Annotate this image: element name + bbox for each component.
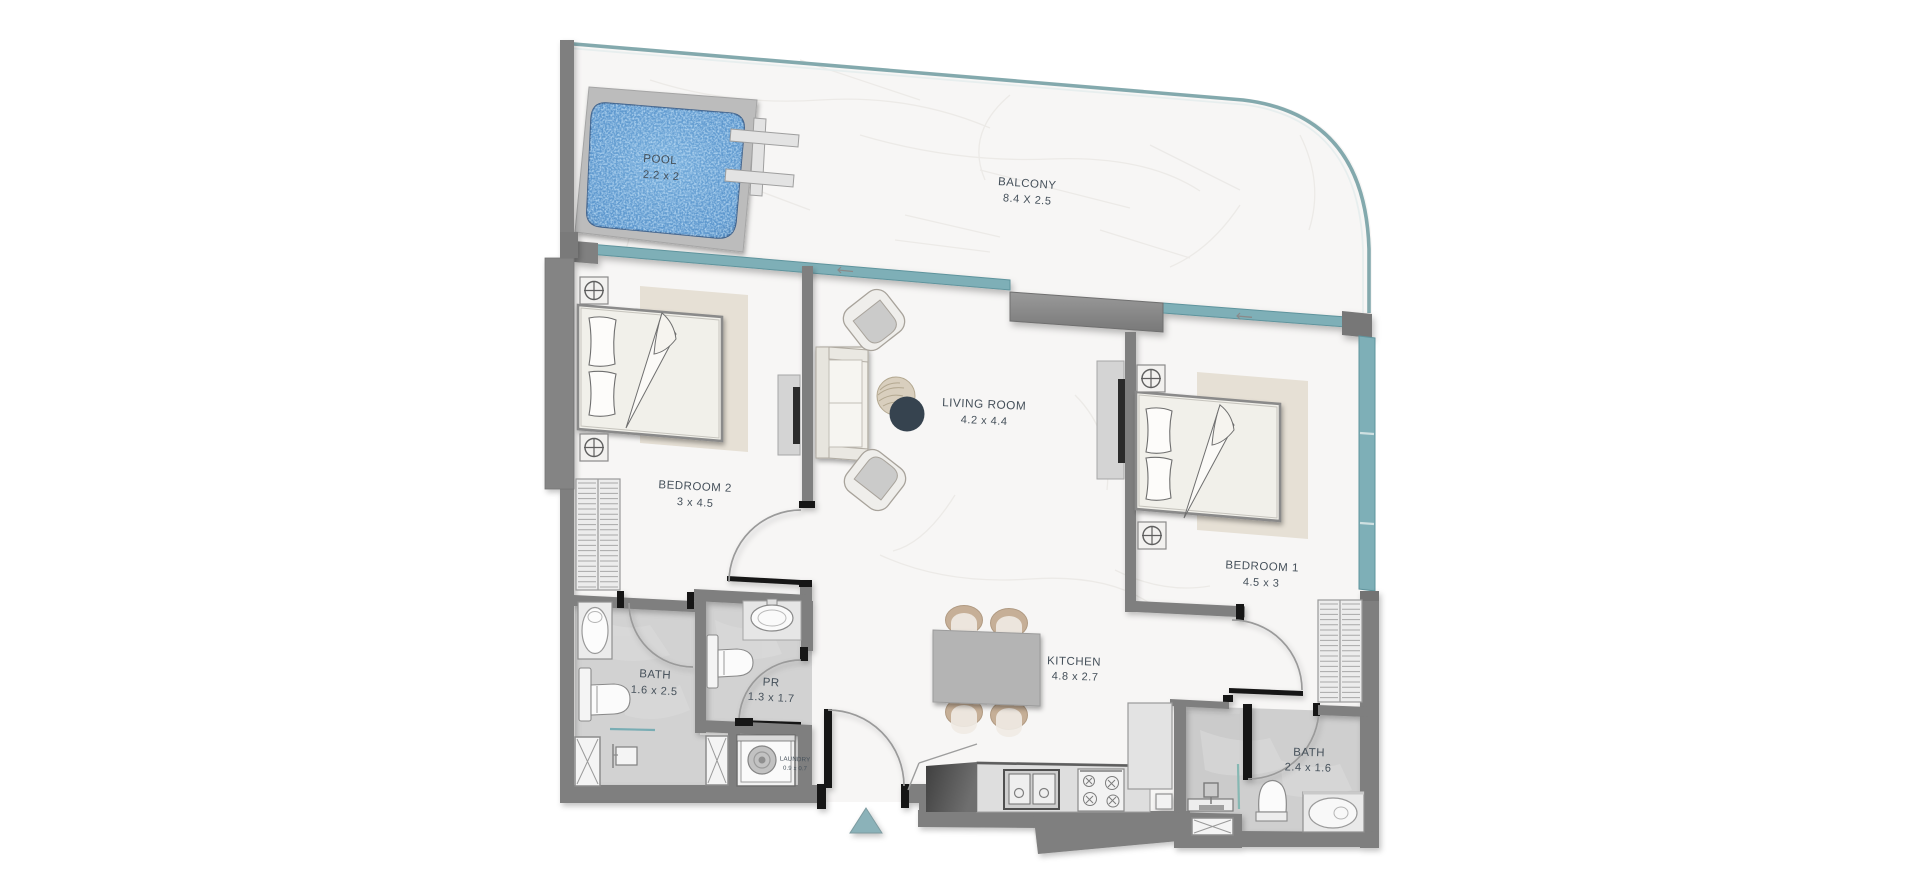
svg-text:POOL: POOL [643,153,678,167]
svg-text:1.6 x 2.5: 1.6 x 2.5 [631,684,678,698]
svg-text:2.2 x 2: 2.2 x 2 [643,169,680,184]
svg-text:4.5 x 3: 4.5 x 3 [1243,576,1280,590]
svg-text:KITCHEN: KITCHEN [1047,655,1101,668]
svg-text:LAUNDRY: LAUNDRY [780,755,811,763]
svg-text:0.9 x 0.7: 0.9 x 0.7 [783,766,807,773]
svg-text:2.4 x 1.6: 2.4 x 1.6 [1285,761,1332,774]
svg-text:BATH: BATH [639,668,671,682]
svg-text:3 x 4.5: 3 x 4.5 [677,496,714,510]
svg-text:4.2 x 4.4: 4.2 x 4.4 [961,414,1008,428]
svg-text:1.3 x 1.7: 1.3 x 1.7 [748,691,795,705]
svg-text:BATH: BATH [1293,747,1325,760]
svg-text:PR: PR [762,677,780,690]
svg-text:4.8 x 2.7: 4.8 x 2.7 [1052,670,1099,683]
